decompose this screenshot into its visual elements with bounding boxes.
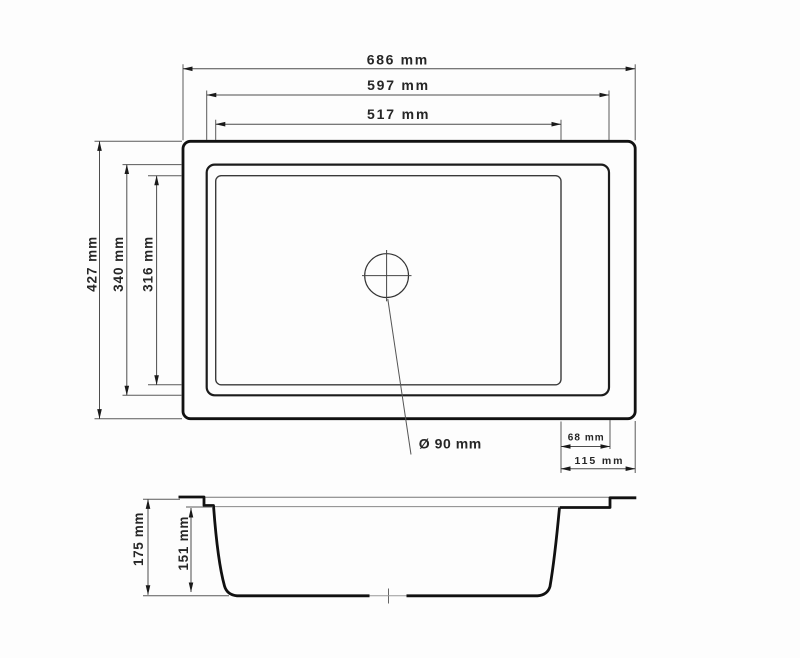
svg-text:340 mm: 340 mm	[111, 237, 126, 292]
svg-text:597 mm: 597 mm	[367, 77, 428, 93]
svg-text:686 mm: 686 mm	[367, 51, 428, 67]
svg-text:115 mm: 115 mm	[575, 455, 623, 467]
svg-text:Ø 90 mm: Ø 90 mm	[419, 436, 482, 452]
svg-text:175 mm: 175 mm	[131, 513, 146, 567]
svg-text:68 mm: 68 mm	[568, 432, 604, 443]
svg-text:151 mm: 151 mm	[176, 517, 191, 571]
svg-text:316 mm: 316 mm	[141, 237, 156, 292]
svg-text:517 mm: 517 mm	[367, 106, 429, 122]
svg-text:427 mm: 427 mm	[85, 237, 100, 292]
